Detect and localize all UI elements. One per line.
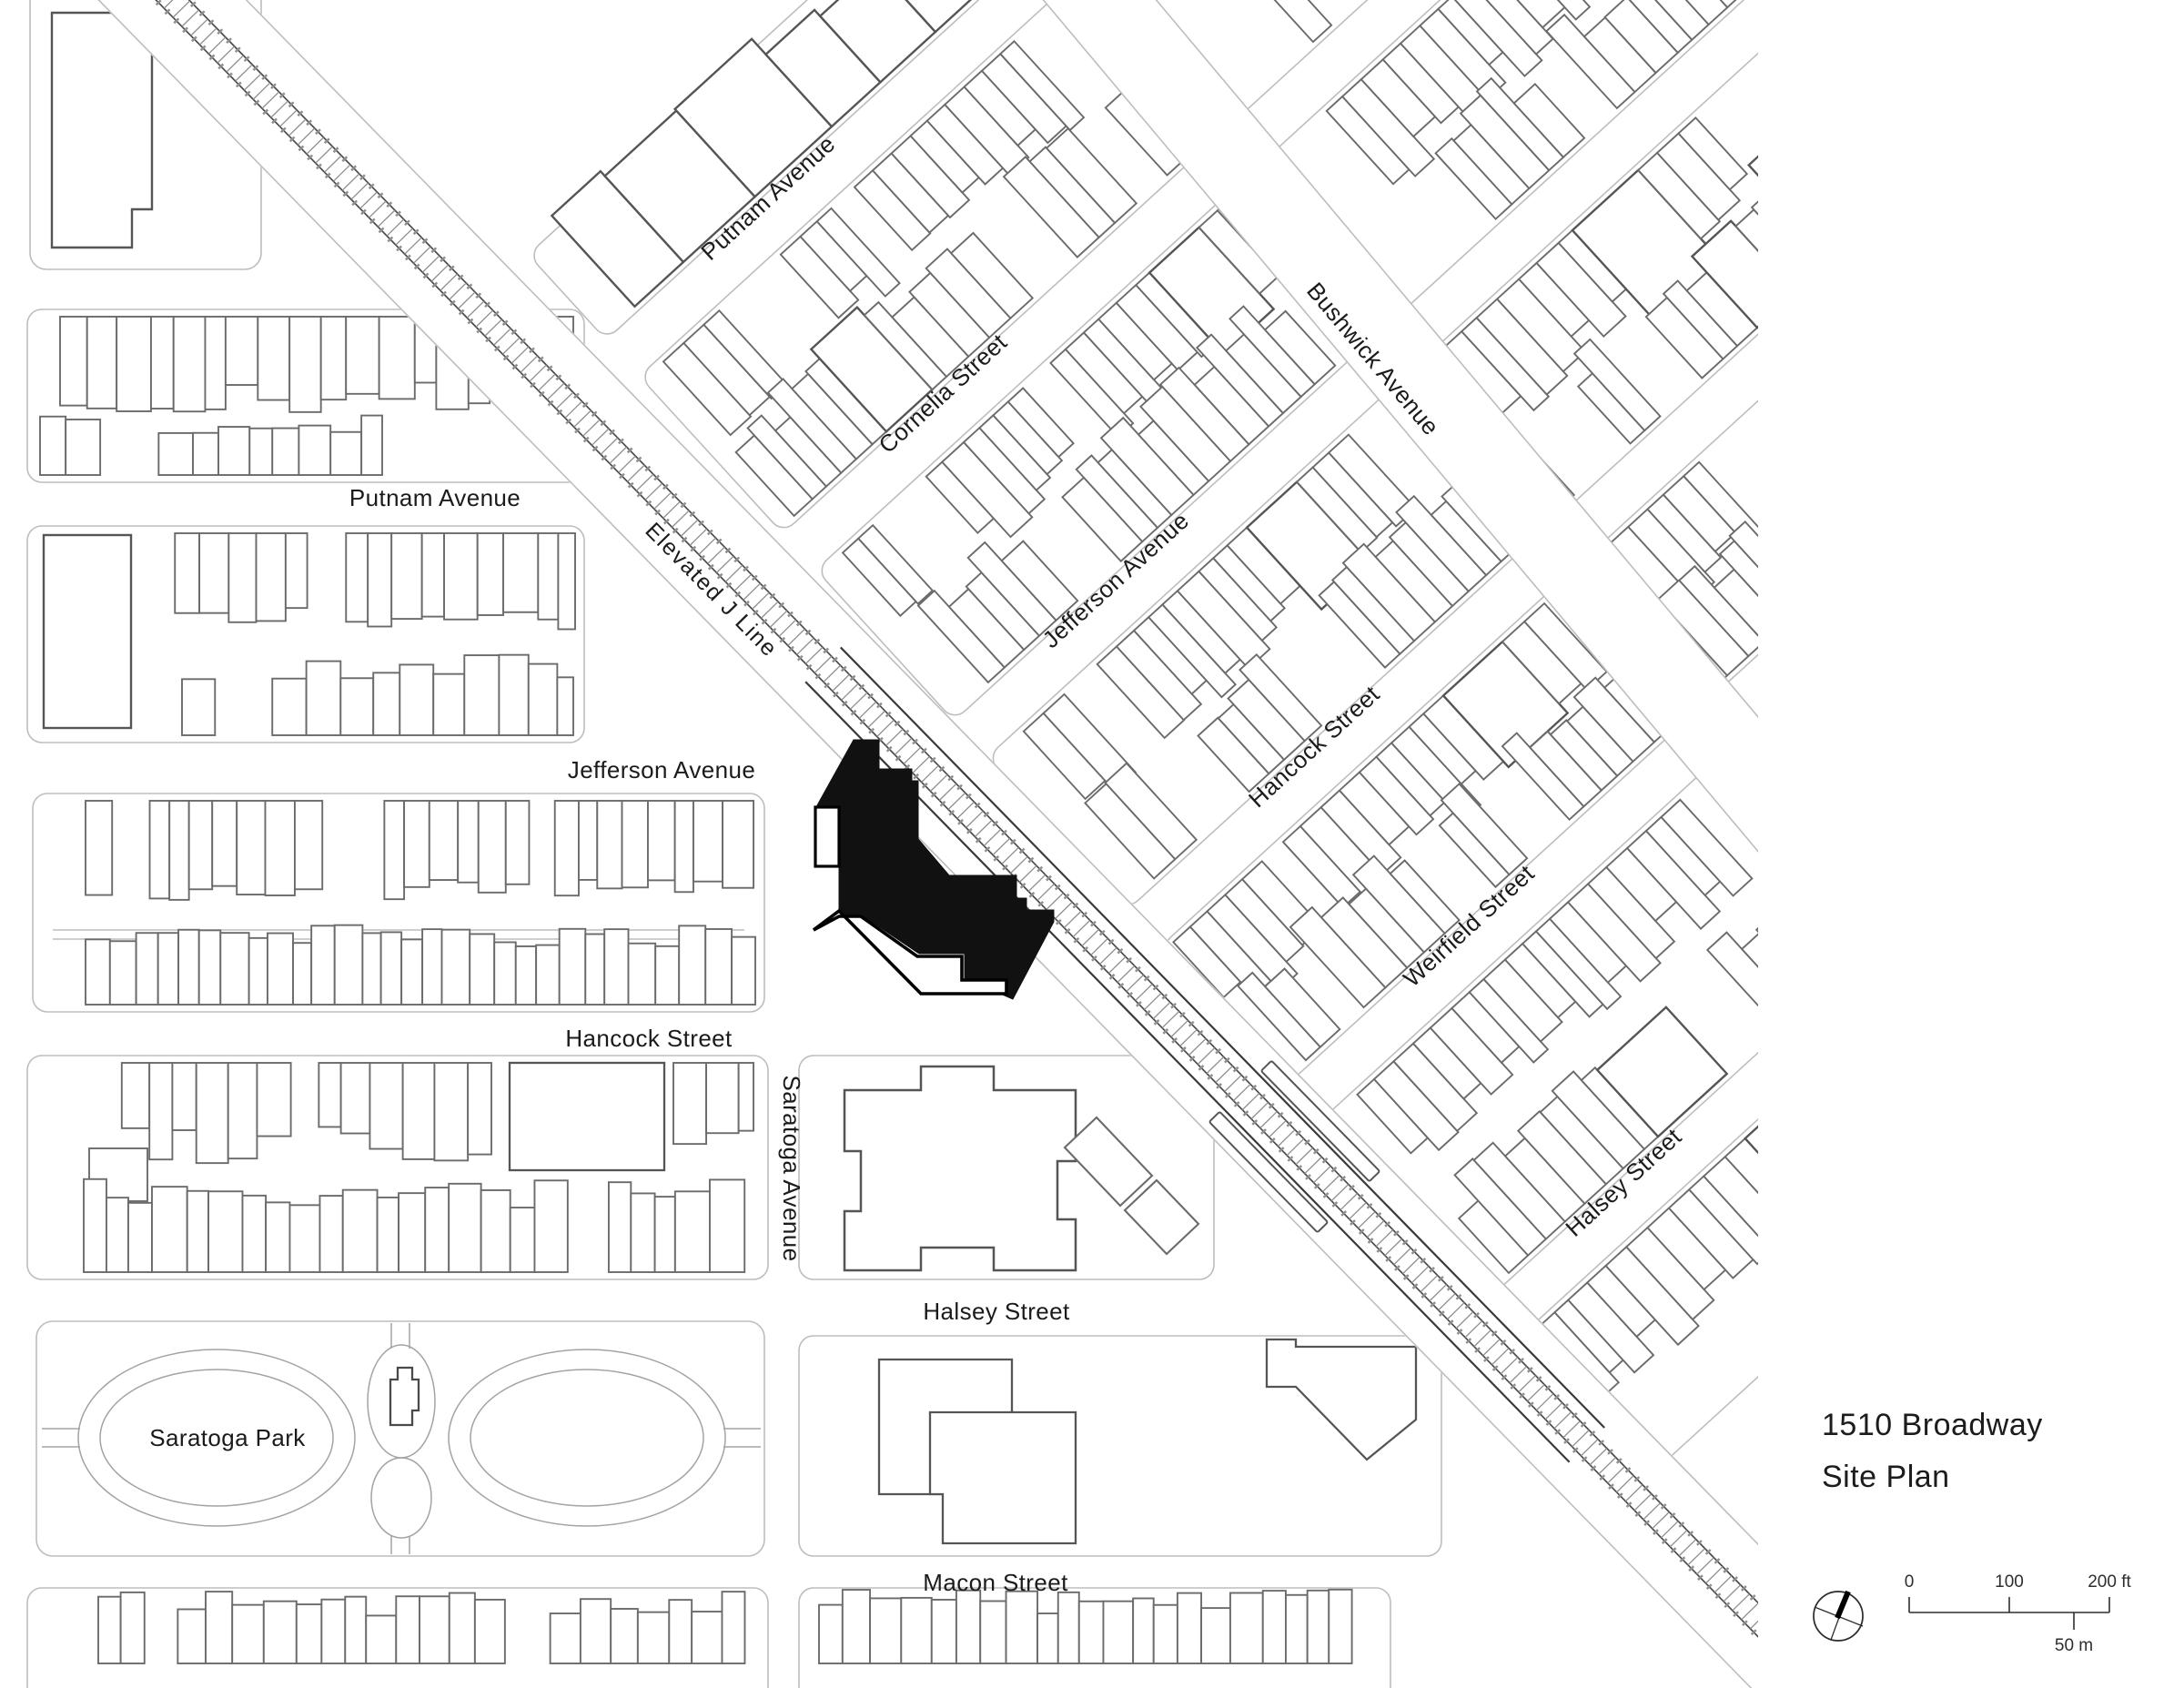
- street-label-hancock-street-west: Hancock Street: [565, 1025, 733, 1052]
- street-label-jefferson-avenue-west: Jefferson Avenue: [568, 756, 755, 783]
- park-label-saratoga-park: Saratoga Park: [149, 1424, 306, 1451]
- site-plan-map: Putnam AvenueJefferson AvenueHancock Str…: [0, 0, 2184, 1688]
- scale-tick-200ft: 200 ft: [2088, 1572, 2131, 1592]
- project-title: 1510 Broadway: [1822, 1408, 2043, 1442]
- drawing-title: Site Plan: [1822, 1460, 1950, 1494]
- scale-tick-0: 0: [1905, 1572, 1915, 1592]
- scale-tick-50m: 50 m: [2055, 1636, 2093, 1655]
- street-label-putnam-avenue-west: Putnam Avenue: [349, 484, 521, 511]
- site-plan-page: Putnam AvenueJefferson AvenueHancock Str…: [0, 0, 2184, 1688]
- street-label-macon-street-west: Macon Street: [923, 1569, 1068, 1596]
- north-arrow-icon: [1814, 1592, 1863, 1641]
- street-label-saratoga-avenue: Saratoga Avenue: [778, 1075, 805, 1261]
- street-label-halsey-street-west: Halsey Street: [923, 1298, 1070, 1325]
- scale-tick-100: 100: [1995, 1572, 2024, 1592]
